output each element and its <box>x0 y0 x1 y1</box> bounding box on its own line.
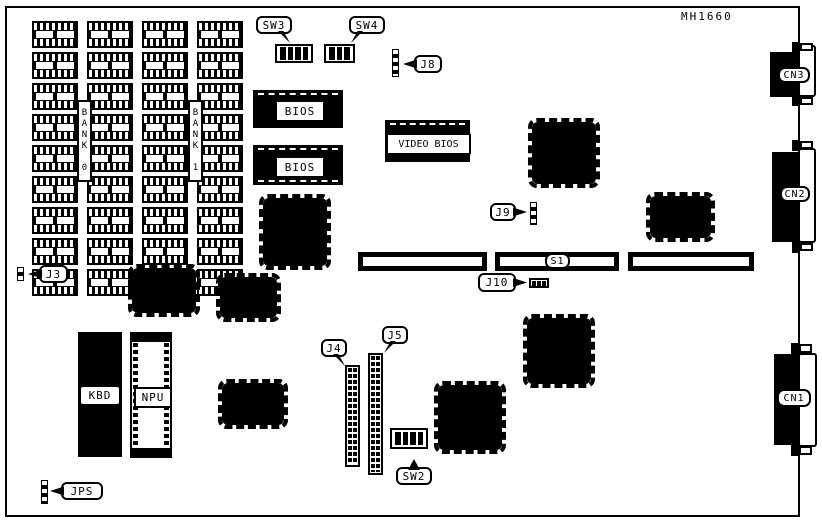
memory-chip <box>32 83 78 110</box>
memory-chip <box>32 21 78 48</box>
switch-position <box>337 47 343 60</box>
memory-chip <box>142 21 188 48</box>
cn2-top-screw-outline <box>800 141 813 149</box>
j5-pin-column <box>376 356 380 472</box>
memory-chip <box>87 114 133 141</box>
qfp-chip <box>527 318 591 384</box>
j9-callout-text: J9 <box>495 206 510 219</box>
memory-chip <box>87 83 133 110</box>
memory-chip <box>87 21 133 48</box>
memory-chip <box>197 207 243 234</box>
switch-position <box>395 432 401 445</box>
expansion-slot-1 <box>358 252 487 271</box>
qfp-chip <box>220 277 277 318</box>
memory-chip <box>142 145 188 172</box>
sw4-callout: SW4 <box>349 16 385 34</box>
bios1-label: BIOS <box>275 100 325 122</box>
sw4-callout-text: SW4 <box>356 19 379 32</box>
memory-chip <box>87 52 133 79</box>
kbd-label: KBD <box>81 387 119 404</box>
video-bios-chip: VIDEO BIOS <box>385 120 470 162</box>
switch-position <box>410 432 416 445</box>
memory-chip <box>197 176 243 203</box>
sw2-dip-switch <box>390 428 428 449</box>
cn2-bottom-screw-outline <box>800 243 813 251</box>
cn2-bottom-screw <box>792 242 800 253</box>
part-number-text: MH1660 <box>681 10 733 23</box>
switch-position <box>344 47 350 60</box>
memory-bank-column <box>197 21 243 296</box>
cn3-bottom-screw-outline <box>800 97 813 105</box>
video-bios-notch-line <box>390 123 465 125</box>
bank0-label: BANK 0 <box>77 100 92 182</box>
j10-callout-text: J10 <box>486 276 509 289</box>
memory-chip <box>32 176 78 203</box>
bios1-notch-line <box>258 93 338 95</box>
memory-bank-column <box>32 21 78 296</box>
cn1-bottom-screw <box>791 445 799 456</box>
j5-pin-header <box>368 353 383 475</box>
bank1-label: BANK 1 <box>188 100 203 182</box>
bios2-label: BIOS <box>275 156 325 178</box>
qfp-chip <box>532 122 596 184</box>
memory-chip <box>87 269 133 296</box>
cn1-bottom-screw-outline <box>799 446 812 455</box>
switch-position <box>288 47 294 60</box>
memory-chip <box>142 52 188 79</box>
memory-chip <box>142 176 188 203</box>
memory-chip <box>197 83 243 110</box>
qfp-chip <box>132 268 196 313</box>
jumper-pin <box>537 281 541 286</box>
j8-callout-text: J8 <box>420 58 435 71</box>
npu-socket: NPU <box>130 332 172 458</box>
memory-chip <box>142 83 188 110</box>
j4-pin-column <box>348 368 352 464</box>
cn1-label: CN1 <box>777 389 811 407</box>
motherboard-diagram: MH1660 BANK 0 BANK 1 SW3 SW4 J8 BIOS BIO… <box>0 0 822 527</box>
switch-position <box>280 47 286 60</box>
video-bios-label: VIDEO BIOS <box>386 133 471 155</box>
memory-chip <box>142 114 188 141</box>
j9-jumper-strip <box>530 202 537 225</box>
npu-socket-top-band <box>132 334 170 342</box>
sw2-callout-text: SW2 <box>403 470 426 483</box>
cn2-label: CN2 <box>780 186 810 202</box>
memory-chip <box>32 207 78 234</box>
switch-position <box>329 47 335 60</box>
cn3-bottom-screw <box>792 96 800 106</box>
npu-label: NPU <box>134 387 172 408</box>
qfp-chip <box>222 383 284 425</box>
bios2-notch-line-bottom <box>258 180 338 182</box>
switch-position <box>418 432 424 445</box>
jps-callout-text: JPS <box>71 485 94 498</box>
memory-chip <box>142 207 188 234</box>
j10-callout: J10 <box>478 273 516 292</box>
cn1-top-screw <box>791 343 799 354</box>
cn3-top-screw-outline <box>800 43 813 51</box>
bios2-notch-line <box>258 148 338 150</box>
sw3-callout: SW3 <box>256 16 292 34</box>
memory-chip <box>87 145 133 172</box>
memory-chip <box>197 114 243 141</box>
bios-chip-2: BIOS <box>253 145 343 185</box>
j4-pin-header <box>345 365 360 467</box>
cn3-top-screw <box>792 42 800 52</box>
memory-chip <box>32 238 78 265</box>
memory-bank-column <box>142 21 188 296</box>
switch-position <box>303 47 309 60</box>
memory-chip <box>197 52 243 79</box>
cn2-top-screw <box>792 140 800 151</box>
bios-chip-1: BIOS <box>253 90 343 128</box>
qfp-chip <box>438 385 502 450</box>
jps-jumper-strip <box>41 480 48 504</box>
j4-pin-column <box>353 368 357 464</box>
s1-label: S1 <box>545 253 570 269</box>
memory-chip <box>87 207 133 234</box>
memory-bank-column <box>87 21 133 296</box>
cn3-label: CN3 <box>778 67 810 83</box>
switch-position <box>403 432 409 445</box>
j8-callout: J8 <box>414 55 442 73</box>
expansion-slot-3 <box>628 252 754 271</box>
qfp-chip <box>263 198 327 266</box>
memory-chip <box>142 238 188 265</box>
sw3-dip-switch <box>275 44 313 63</box>
cn1-top-screw-outline <box>799 344 812 353</box>
sw2-callout: SW2 <box>396 467 432 485</box>
qfp-chip <box>650 196 711 238</box>
j4-callout: J4 <box>321 339 347 357</box>
j5-callout-text: J5 <box>387 329 402 342</box>
j8-jumper-strip <box>392 49 399 77</box>
j4-callout-text: J4 <box>326 342 341 355</box>
memory-chip <box>197 145 243 172</box>
j3-callout-text: J3 <box>46 268 61 281</box>
j3-callout: J3 <box>39 265 68 283</box>
sw3-callout-text: SW3 <box>263 19 286 32</box>
memory-chip <box>87 176 133 203</box>
kbd-controller-chip: KBD <box>78 332 122 457</box>
j5-callout: J5 <box>382 326 408 344</box>
memory-chip <box>32 52 78 79</box>
jps-callout: JPS <box>61 482 103 500</box>
memory-chip <box>87 238 133 265</box>
j10-jumper-strip <box>529 278 549 288</box>
jumper-pin <box>532 281 536 286</box>
memory-chip <box>197 238 243 265</box>
jumper-pin <box>542 281 546 286</box>
npu-socket-bottom-band <box>132 448 170 456</box>
sw4-dip-switch <box>324 44 355 63</box>
j3-jumper-strip <box>17 267 24 281</box>
j5-pin-column <box>371 356 375 472</box>
memory-chip <box>32 114 78 141</box>
j9-callout: J9 <box>490 203 516 221</box>
memory-chip <box>32 145 78 172</box>
switch-position <box>295 47 301 60</box>
memory-chip <box>197 21 243 48</box>
